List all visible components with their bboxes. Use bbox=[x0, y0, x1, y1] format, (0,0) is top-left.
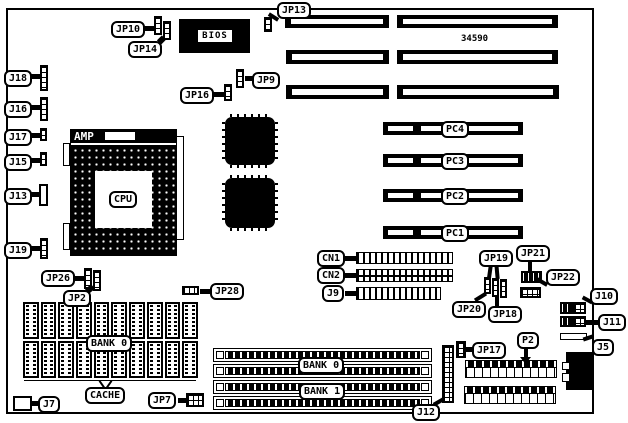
label-j10: J10 bbox=[590, 288, 618, 305]
label-jp14: JP14 bbox=[128, 41, 162, 58]
label-jp22: JP22 bbox=[546, 269, 580, 286]
pointer bbox=[345, 291, 356, 296]
power-connector-row2 bbox=[464, 386, 556, 404]
j10-jumper-dark bbox=[560, 302, 573, 314]
qfp-chip-lower bbox=[225, 178, 275, 228]
label-pc1: PC1 bbox=[441, 225, 469, 242]
amp-socket-label: AMP bbox=[74, 131, 94, 142]
cache-socket bbox=[147, 302, 163, 339]
j10-jumper-light bbox=[573, 302, 586, 314]
label-jp18: JP18 bbox=[488, 306, 522, 323]
cache-socket bbox=[94, 302, 110, 339]
cache-socket bbox=[41, 341, 57, 378]
cache-socket bbox=[165, 341, 181, 378]
label-j9: J9 bbox=[322, 285, 344, 302]
keyboard-connector-notch-1 bbox=[562, 362, 570, 370]
jp10-jumper-a bbox=[154, 16, 162, 35]
label-j11: J11 bbox=[598, 314, 626, 331]
jp9-jumper bbox=[236, 69, 244, 88]
label-p2: P2 bbox=[517, 332, 539, 349]
label-simm-bank0: BANK 0 bbox=[298, 357, 344, 374]
jp17-jumper bbox=[456, 341, 466, 358]
motherboard-layout-diagram: 34590 BIOS JP10 JP14 JP13 JP16 JP9 J18 J… bbox=[0, 0, 628, 423]
label-j19: J19 bbox=[4, 242, 32, 259]
label-pc3: PC3 bbox=[441, 153, 469, 170]
j17-header bbox=[40, 128, 47, 141]
cache-socket bbox=[182, 341, 198, 378]
bios-chip-label: BIOS bbox=[197, 29, 233, 43]
label-j18: J18 bbox=[4, 70, 32, 87]
socket-header-line bbox=[71, 143, 176, 145]
cache-socket bbox=[58, 341, 74, 378]
label-cn2: CN2 bbox=[317, 267, 345, 284]
board-part-number: 34590 bbox=[461, 34, 488, 44]
label-jp26: JP26 bbox=[41, 270, 75, 287]
isa-slot-1-right bbox=[397, 15, 558, 28]
label-j13: J13 bbox=[4, 188, 32, 205]
jp13-jumper bbox=[264, 17, 272, 32]
jp19-jumper-b bbox=[492, 278, 499, 297]
cache-socket bbox=[58, 302, 74, 339]
qfp-chip-upper bbox=[225, 117, 275, 165]
jp19-jumper-c bbox=[500, 279, 507, 298]
j13-connector bbox=[39, 184, 48, 206]
jp16-jumper bbox=[224, 84, 232, 101]
cn2-header bbox=[356, 269, 453, 282]
pointer bbox=[178, 398, 187, 403]
power-connector-row1 bbox=[465, 360, 557, 379]
label-jp20: JP20 bbox=[452, 301, 486, 318]
cache-socket bbox=[129, 302, 145, 339]
j15-header bbox=[40, 152, 47, 166]
cache-socket bbox=[182, 302, 198, 339]
jp7-jumper bbox=[186, 393, 204, 407]
label-cpu: CPU bbox=[109, 191, 137, 208]
socket-tab-upper bbox=[63, 143, 70, 166]
cache-socket bbox=[165, 302, 181, 339]
label-jp10: JP10 bbox=[111, 21, 145, 38]
pointer bbox=[585, 320, 599, 325]
label-jp7: JP7 bbox=[148, 392, 176, 409]
label-cache-bank0: BANK 0 bbox=[86, 335, 132, 352]
label-jp2: JP2 bbox=[63, 290, 91, 307]
cache-socket bbox=[23, 341, 39, 378]
label-jp21: JP21 bbox=[516, 245, 550, 262]
label-pc2: PC2 bbox=[441, 188, 469, 205]
label-cache: CACHE bbox=[85, 387, 125, 404]
j7-connector bbox=[13, 396, 32, 411]
isa-slot-3-right bbox=[397, 85, 559, 99]
cache-socket bbox=[41, 302, 57, 339]
isa-slot-2-right bbox=[397, 50, 558, 64]
label-j12: J12 bbox=[412, 404, 440, 421]
pointer bbox=[144, 26, 154, 31]
j16-header bbox=[40, 97, 48, 121]
label-jp28: JP28 bbox=[210, 283, 244, 300]
label-cn1: CN1 bbox=[317, 250, 345, 267]
label-jp16: JP16 bbox=[180, 87, 214, 104]
jp22-jumper bbox=[520, 287, 541, 298]
label-j7: J7 bbox=[38, 396, 60, 413]
label-jp19: JP19 bbox=[479, 250, 513, 267]
label-jp13: JP13 bbox=[277, 2, 311, 19]
keyboard-connector-notch-2 bbox=[562, 373, 570, 382]
label-simm-bank1: BANK 1 bbox=[299, 383, 345, 400]
label-jp9: JP9 bbox=[252, 72, 280, 89]
pointer bbox=[345, 273, 356, 278]
label-j5: J5 bbox=[592, 339, 614, 356]
label-j15: J15 bbox=[4, 154, 32, 171]
cache-socket bbox=[76, 302, 92, 339]
label-j16: J16 bbox=[4, 101, 32, 118]
label-jp17: JP17 bbox=[472, 342, 506, 359]
j12-header bbox=[442, 345, 454, 403]
jp28-jumper bbox=[182, 286, 199, 295]
isa-slot-3-left bbox=[286, 85, 389, 99]
amp-window bbox=[105, 132, 135, 140]
keyboard-connector bbox=[566, 352, 593, 390]
cache-socket bbox=[23, 302, 39, 339]
pointer bbox=[345, 256, 356, 261]
cache-socket bbox=[147, 341, 163, 378]
cn1-header bbox=[356, 252, 453, 264]
j11-jumper-dark bbox=[560, 316, 573, 327]
j19-header bbox=[40, 238, 48, 259]
socket-tab-lower bbox=[63, 223, 70, 250]
label-pc4: PC4 bbox=[441, 121, 469, 138]
label-j17: J17 bbox=[4, 129, 32, 146]
j9-header bbox=[356, 287, 441, 300]
j18-header bbox=[40, 65, 48, 91]
p2-arrow-stem bbox=[524, 348, 528, 358]
isa-slot-2-left bbox=[286, 50, 389, 64]
cache-socket bbox=[111, 302, 127, 339]
pointer bbox=[200, 289, 210, 294]
